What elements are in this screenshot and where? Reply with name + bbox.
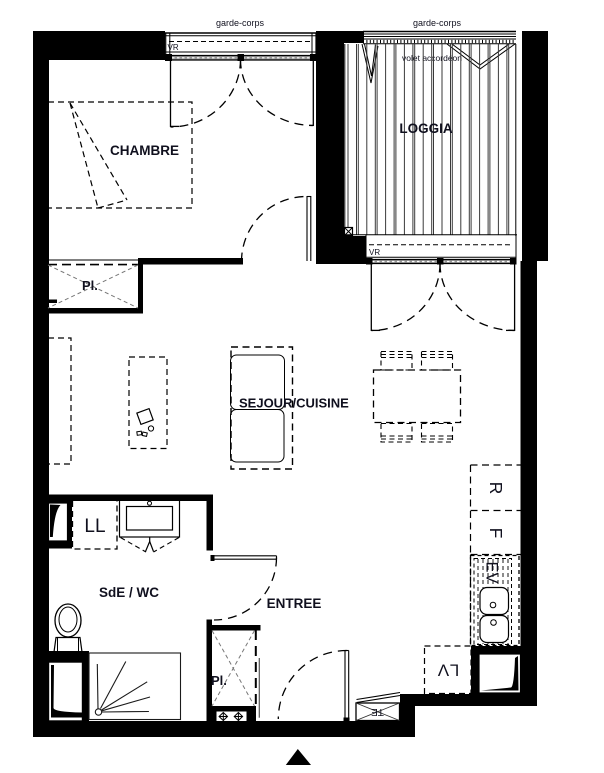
svg-text:garde-corps: garde-corps xyxy=(216,18,265,28)
svg-text:Pl.: Pl. xyxy=(82,278,98,293)
svg-text:garde-corps: garde-corps xyxy=(413,18,462,28)
svg-text:F: F xyxy=(486,528,506,539)
svg-text:SdE / WC: SdE / WC xyxy=(99,585,159,600)
svg-text:EV: EV xyxy=(483,561,501,583)
svg-text:Pl.: Pl. xyxy=(211,673,227,688)
svg-text:LL: LL xyxy=(84,516,105,537)
svg-text:VR: VR xyxy=(369,248,380,257)
svg-text:SEJOUR/CUISINE: SEJOUR/CUISINE xyxy=(239,396,349,411)
svg-text:ENTREE: ENTREE xyxy=(267,596,322,611)
svg-text:LV: LV xyxy=(436,661,460,680)
svg-text:TE: TE xyxy=(371,706,384,717)
svg-text:LOGGIA: LOGGIA xyxy=(399,121,452,136)
svg-text:R: R xyxy=(486,482,506,495)
svg-text:CHAMBRE: CHAMBRE xyxy=(110,143,179,158)
svg-text:VR: VR xyxy=(168,43,179,52)
